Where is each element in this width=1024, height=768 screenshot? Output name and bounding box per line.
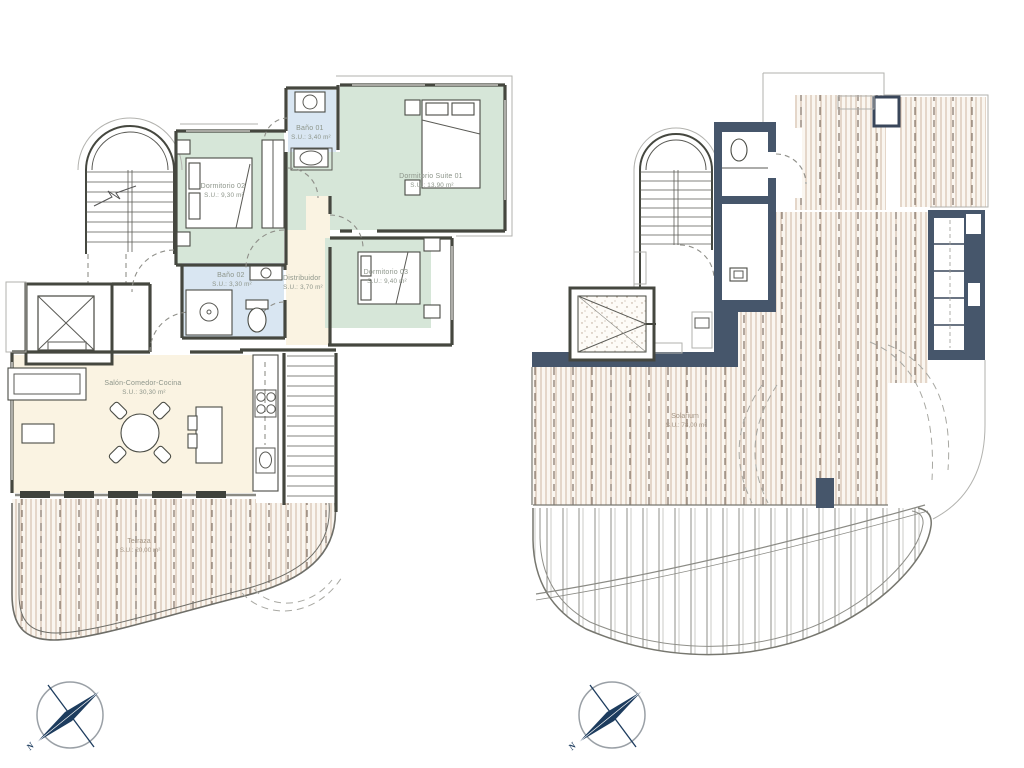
compass-left: N <box>24 682 103 753</box>
kitchen-island <box>196 407 222 463</box>
dining-table <box>121 414 159 452</box>
kitchen-counter <box>253 355 278 491</box>
staircase-left <box>78 118 182 284</box>
compass-right: N <box>566 682 645 753</box>
roof-stair-block <box>928 210 985 360</box>
counter-detail <box>695 318 709 328</box>
floor-plan-left: Dormitorio 02 S.U.: 9,30 m² Baño 01 S.U.… <box>6 76 512 640</box>
door-opening <box>768 152 776 178</box>
floor-plan-right: Solarium S.U.: 78,00 m² <box>532 73 988 655</box>
staircase-right <box>634 134 714 300</box>
toilet-bowl <box>248 308 266 332</box>
deck-edge-block <box>816 478 834 508</box>
sofa <box>8 368 86 400</box>
wall-connector <box>714 306 738 352</box>
bench <box>652 343 682 353</box>
toilet <box>294 149 328 167</box>
pergola <box>533 505 931 655</box>
north-label: N <box>24 740 37 753</box>
skylight <box>874 97 899 126</box>
floor-plan-sheet: Dormitorio 02 S.U.: 9,30 m² Baño 01 S.U.… <box>0 0 1024 768</box>
stair-break-line <box>94 186 136 206</box>
stairs-to-roof <box>287 356 334 496</box>
north-label: N <box>566 740 579 753</box>
stair-treads-right <box>640 172 712 244</box>
coffee-table <box>22 424 54 443</box>
shower <box>186 290 232 335</box>
stair-treads <box>86 172 174 242</box>
wc <box>730 268 747 281</box>
sink <box>731 139 747 161</box>
counter <box>692 312 712 348</box>
compass-needle-midline <box>579 691 642 742</box>
terrace-deck <box>12 499 342 640</box>
elevator-right <box>570 288 656 360</box>
compass-needle-midline <box>37 691 100 742</box>
